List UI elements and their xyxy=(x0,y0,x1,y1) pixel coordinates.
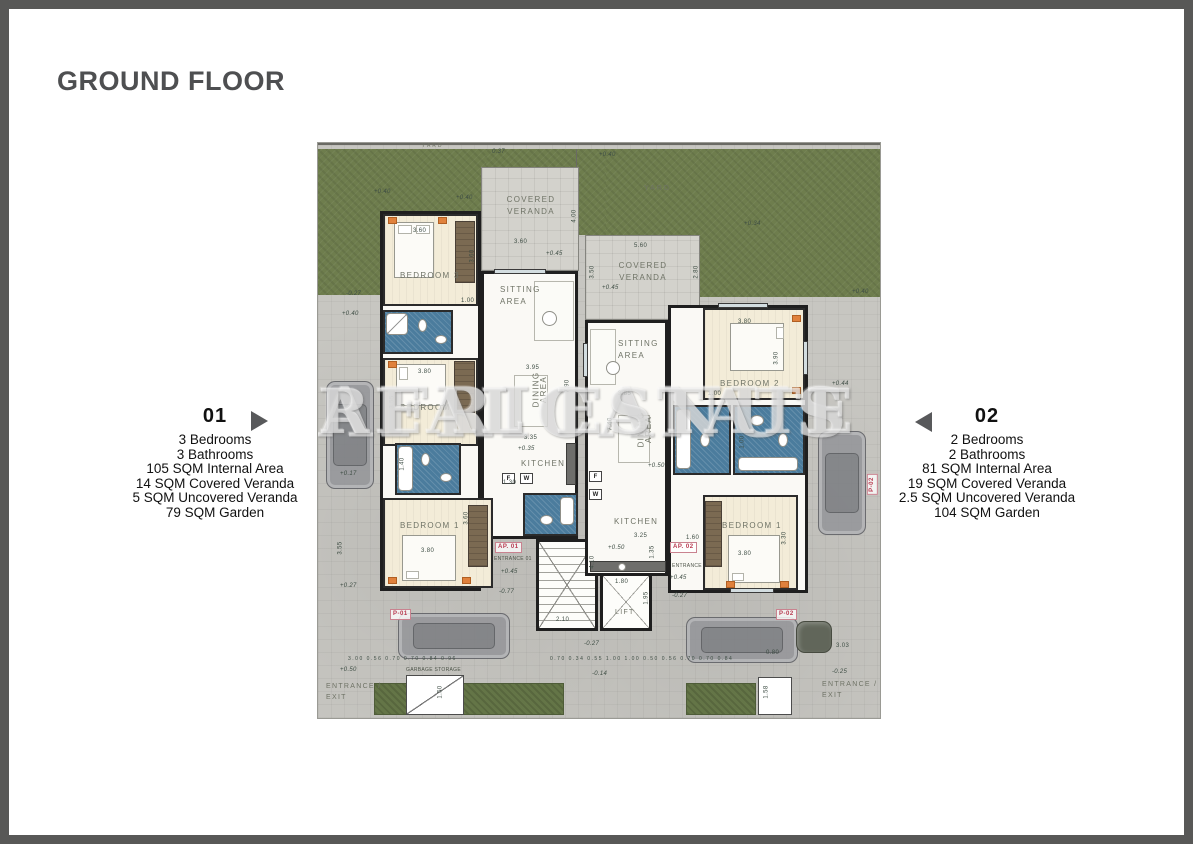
elevation-mark: 0.37 xyxy=(492,149,505,155)
toilet xyxy=(778,433,788,447)
elevation-mark: +0.40 xyxy=(852,289,869,295)
wardrobe xyxy=(705,501,722,567)
yard-label: YARD xyxy=(644,185,671,192)
washer-box: W xyxy=(520,473,533,484)
dimension-label: 3.60 xyxy=(464,511,470,524)
elevation-mark: +0.35 xyxy=(518,446,535,452)
dimension-label: 3.80 xyxy=(738,319,751,325)
elevation-mark: +0.45 xyxy=(670,575,687,581)
dimension-label: 3.30 xyxy=(782,531,788,544)
apartment-02-tag: AP. 02 xyxy=(670,542,697,553)
dimension-label: 1.30 xyxy=(503,480,516,486)
covered-veranda-02-label: VERANDA xyxy=(608,273,678,282)
dimension-label: 1.60 xyxy=(686,535,699,541)
sitting-area-01-label: AREA xyxy=(500,297,527,306)
lift-label: LIFT xyxy=(615,609,635,616)
sitting-area-02-label: AREA xyxy=(618,351,645,360)
dimension-label: 3.35 xyxy=(524,435,537,441)
spec-line: 19 SQM Covered Veranda xyxy=(897,477,1077,492)
dimension-label: 3.80 xyxy=(418,369,431,375)
window xyxy=(494,269,546,274)
bed-pillow xyxy=(732,573,744,581)
fridge-box: F xyxy=(589,471,602,482)
entrance-exit-left-label: EXIT xyxy=(326,694,347,701)
dimension-label: 3.55 xyxy=(338,541,344,554)
elevation-mark: -0.27 xyxy=(584,641,599,647)
nightstand xyxy=(388,217,397,224)
party-boundary-line xyxy=(576,149,577,169)
window xyxy=(718,303,768,308)
window xyxy=(730,588,774,593)
entrance-exit-left-label: ENTRANCE / xyxy=(326,683,381,690)
covered-veranda-01-label: COVERED xyxy=(496,195,566,204)
page-canvas: GROUND FLOOR 01 3 Bedrooms 3 Bathrooms 1… xyxy=(0,0,1193,844)
dimension-label: 1.00 xyxy=(708,391,721,397)
dining-area-01-label: AREA xyxy=(539,376,548,403)
spec-line: 79 SQM Garden xyxy=(125,506,305,521)
bedroom-3-label: BEDROOM 3 xyxy=(400,271,460,280)
dimension-label: 3.60 xyxy=(413,228,426,234)
nightstand xyxy=(780,581,789,588)
toilet xyxy=(700,433,710,447)
spec-line: 2 Bedrooms xyxy=(897,433,1077,448)
dimension-label: 3.60 xyxy=(514,239,527,245)
covered-veranda-01-label: VERANDA xyxy=(496,207,566,216)
dimension-label: 3.80 xyxy=(421,548,434,554)
sink xyxy=(540,515,553,525)
bed-pillow xyxy=(776,327,784,339)
dimension-label: 3.95 xyxy=(526,365,539,371)
dimension-label: 3.60 xyxy=(470,249,476,262)
bathtub xyxy=(738,457,798,471)
dimension-label: 7.90 xyxy=(565,379,571,392)
elevation-mark: +0.44 xyxy=(832,381,849,387)
bed-pillow xyxy=(399,367,408,380)
elevation-mark: +0.40 xyxy=(374,189,391,195)
sink xyxy=(618,563,626,571)
bedroom-1-02-label: BEDROOM 1 xyxy=(722,521,782,530)
parking-01-tag: P-01 xyxy=(390,609,411,620)
dimension-label: 3.90 xyxy=(774,351,780,364)
elevation-mark: +0.40 xyxy=(342,311,359,317)
elevation-mark: -0.27 xyxy=(346,291,361,297)
elevation-mark: -0.14 xyxy=(592,671,607,677)
covered-veranda-01 xyxy=(481,167,579,271)
entrance-exit-right-label: ENTRANCE / xyxy=(822,681,877,688)
spec-line: 3 Bathrooms xyxy=(125,448,305,463)
kitchen-02-label: KITCHEN xyxy=(614,517,658,526)
elevation-mark: +0.45 xyxy=(546,251,563,257)
boundary-line xyxy=(318,143,880,145)
page-title: GROUND FLOOR xyxy=(57,66,285,97)
yard-label: YARD xyxy=(422,143,444,149)
dimension-label: 1.00 xyxy=(740,435,746,448)
dimension-label: 4.10 xyxy=(590,555,596,568)
dimension-label: 1.35 xyxy=(650,545,656,558)
entrance-02-label: ENTRANCE xyxy=(672,563,702,569)
dimension-label: 1.58 xyxy=(764,685,770,698)
dimension-label: 5.60 xyxy=(634,243,647,249)
dimension-label: 2.80 xyxy=(694,265,700,278)
shower xyxy=(386,313,408,335)
spec-line: 3 Bedrooms xyxy=(125,433,305,448)
sitting-area-01-label: SITTING xyxy=(500,285,541,294)
kitchen-counter xyxy=(590,561,666,572)
car xyxy=(398,613,510,659)
coffee-table xyxy=(542,311,557,326)
sink xyxy=(750,415,764,426)
nightstand xyxy=(726,581,735,588)
dimension-label: 1.40 xyxy=(400,457,406,470)
spec-line: 2.5 SQM Uncovered Veranda xyxy=(897,491,1077,506)
sofa xyxy=(590,329,616,385)
elevation-mark: +0.17 xyxy=(340,471,357,477)
spec-line: 5 SQM Uncovered Veranda xyxy=(125,491,305,506)
elevation-mark: -0.25 xyxy=(832,669,847,675)
nightstand xyxy=(388,361,397,368)
elevation-mark: +0.40 xyxy=(456,195,473,201)
bathtub xyxy=(560,497,574,525)
dimension-label: 1.50 xyxy=(438,685,444,698)
elevation-mark: -0.27 xyxy=(672,593,687,599)
spec-line: 2 Bathrooms xyxy=(897,448,1077,463)
car xyxy=(818,431,866,535)
bed-pillow xyxy=(398,225,412,234)
entrance-01-label: ENTRANCE 01 xyxy=(494,556,532,562)
toilet xyxy=(418,319,427,332)
dimension-label: 0.80 xyxy=(766,650,779,656)
dining-area-02-label: AREA xyxy=(644,416,653,443)
kitchen-counter xyxy=(566,443,576,485)
sink xyxy=(435,335,447,344)
dimension-label: 3.25 xyxy=(634,533,647,539)
coffee-table xyxy=(606,361,620,375)
bathtub xyxy=(676,409,691,469)
elevation-mark: -0.77 xyxy=(499,589,514,595)
elevation-mark: +0.27 xyxy=(340,583,357,589)
dimension-label: 3.03 xyxy=(836,643,849,649)
dimension-chain: 0.70 0.34 0.55 1.00 1.00 0.50 0.56 0.70 … xyxy=(550,656,733,662)
bed-pillow xyxy=(406,571,419,579)
parking-02-tag: P-02 xyxy=(867,474,878,495)
apartment-01-tag: AP. 01 xyxy=(495,542,522,553)
dimension-label: 3.85 xyxy=(618,391,631,397)
bush xyxy=(796,621,832,653)
covered-veranda-02-label: COVERED xyxy=(608,261,678,270)
dimension-label: 1.95 xyxy=(644,591,650,604)
dimension-label: 2.10 xyxy=(556,617,569,623)
nightstand xyxy=(792,387,801,394)
dimension-label: 3.55 xyxy=(390,395,396,408)
window xyxy=(803,341,808,375)
dimension-label: 3.80 xyxy=(738,551,751,557)
nightstand xyxy=(792,315,801,322)
elevation-mark: +0.34 xyxy=(744,221,761,227)
elevation-mark: +0.45 xyxy=(501,569,518,575)
garbage-storage-label: GARBAGE STORAGE xyxy=(406,667,461,673)
elevation-mark: +0.50 xyxy=(340,667,357,673)
toilet xyxy=(421,453,430,466)
dimension-chain: 3.00 0.56 0.70 0.70 0.84 0.96 xyxy=(348,656,457,662)
floor-plan: YARD YARD COVERED VERANDA COVERED VERAND… xyxy=(318,143,880,718)
garbage-storage-area xyxy=(406,675,464,715)
hedge xyxy=(686,683,756,715)
window xyxy=(583,343,588,377)
sink xyxy=(440,473,452,482)
arrow-left-icon xyxy=(915,412,932,432)
unit-01-specs: 01 3 Bedrooms 3 Bathrooms 105 SQM Intern… xyxy=(125,405,305,521)
unit-02-specs: 02 2 Bedrooms 2 Bathrooms 81 SQM Interna… xyxy=(897,405,1077,521)
bedroom-2-01-label: BEDROOM 2 xyxy=(400,403,460,412)
dimension-label: 3.50 xyxy=(590,265,596,278)
elevation-mark: +0.40 xyxy=(599,152,616,158)
wardrobe xyxy=(468,505,488,567)
sitting-area-02-label: SITTING xyxy=(618,339,659,348)
nightstand xyxy=(462,577,471,584)
dimension-label: 1.80 xyxy=(615,579,628,585)
hedge xyxy=(374,683,564,715)
spec-line: 81 SQM Internal Area xyxy=(897,462,1077,477)
bedroom-2-02-label: BEDROOM 2 xyxy=(720,379,780,388)
entrance-exit-right-label: EXIT xyxy=(822,692,843,699)
spec-line: 105 SQM Internal Area xyxy=(125,462,305,477)
washer-box: W xyxy=(589,489,602,500)
dimension-label: 7.40 xyxy=(608,417,614,430)
dimension-label: 4.00 xyxy=(572,209,578,222)
arrow-right-icon xyxy=(251,411,268,431)
spec-line: 104 SQM Garden xyxy=(897,506,1077,521)
unit-01-number: 01 xyxy=(125,405,305,428)
kitchen-01-label: KITCHEN xyxy=(521,459,565,468)
parking-02-tag: P-02 xyxy=(776,609,797,620)
dimension-label: 1.00 xyxy=(461,298,474,304)
elevation-mark: +0.45 xyxy=(602,285,619,291)
spec-line: 14 SQM Covered Veranda xyxy=(125,477,305,492)
elevation-mark: +0.50 xyxy=(608,545,625,551)
nightstand xyxy=(438,217,447,224)
elevation-mark: +0.50 xyxy=(648,463,665,469)
nightstand xyxy=(388,577,397,584)
bedroom-1-01-label: BEDROOM 1 xyxy=(400,521,460,530)
